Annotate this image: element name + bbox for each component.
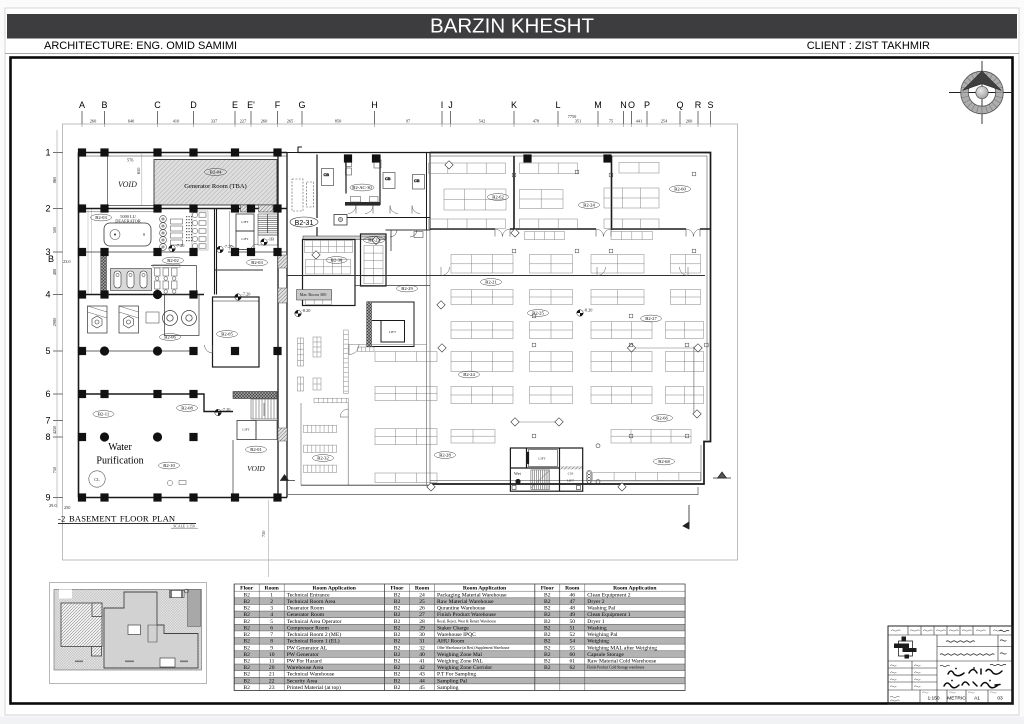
svg-text:Technical Room 1 (EL): Technical Room 1 (EL): [287, 638, 340, 645]
svg-text:Staker Charge: Staker Charge: [437, 625, 469, 631]
svg-text:29.0: 29.0: [49, 503, 57, 508]
svg-text:Raw Material Warehouse: Raw Material Warehouse: [437, 599, 494, 605]
svg-text:N: N: [620, 100, 627, 110]
svg-text:61: 61: [570, 659, 576, 665]
svg-text:B2-68: B2-68: [658, 459, 670, 464]
svg-text:6: 6: [45, 389, 50, 399]
svg-text:640: 640: [128, 119, 134, 124]
svg-text:22: 22: [269, 678, 275, 684]
svg-text:LIFT: LIFT: [241, 220, 249, 224]
svg-text:Technical Room Area: Technical Room Area: [287, 599, 336, 605]
svg-text:B2-66: B2-66: [656, 415, 668, 420]
svg-text:B2-AC-30: B2-AC-30: [352, 185, 372, 190]
svg-text:Room Application: Room Application: [613, 585, 657, 591]
svg-text:Technical Warehouse: Technical Warehouse: [287, 672, 335, 678]
svg-text:B2-10: B2-10: [163, 463, 175, 468]
svg-text:Weighing Zone PAL: Weighing Zone PAL: [437, 659, 484, 665]
svg-text:B2-05: B2-05: [221, 331, 233, 336]
svg-text:750: 750: [52, 467, 57, 473]
svg-text:576: 576: [127, 158, 134, 163]
svg-text:PW Generator: PW Generator: [287, 652, 319, 658]
svg-text:850: 850: [335, 119, 341, 124]
svg-text:B2: B2: [243, 685, 250, 691]
svg-text:Room Application: Room Application: [313, 585, 357, 591]
svg-text:250: 250: [64, 505, 70, 510]
svg-text:2: 2: [270, 599, 273, 605]
svg-text:CL: CL: [94, 477, 100, 482]
svg-text:B2: B2: [544, 625, 551, 631]
svg-text:40: 40: [419, 652, 425, 658]
svg-text:9: 9: [270, 645, 273, 651]
svg-text:AHU Room: AHU Room: [437, 639, 465, 645]
svg-text:650: 650: [136, 168, 141, 174]
svg-text:B2: B2: [243, 632, 250, 638]
svg-text:Dryer 1: Dryer 1: [587, 619, 604, 625]
svg-text:28: 28: [419, 619, 425, 625]
svg-text:B2: B2: [243, 645, 250, 651]
svg-text:Compressor Room: Compressor Room: [287, 625, 330, 631]
svg-text:B2: B2: [243, 606, 250, 612]
svg-text:43: 43: [419, 672, 425, 678]
svg-text:B2: B2: [394, 632, 401, 638]
svg-text:Sampling Pal: Sampling Pal: [437, 678, 467, 684]
svg-text:Deaerator Room: Deaerator Room: [287, 606, 325, 612]
svg-text:B2: B2: [394, 672, 401, 678]
svg-text:B2-24: B2-24: [583, 202, 595, 207]
svg-text:Weighing Pal: Weighing Pal: [587, 632, 618, 638]
svg-text:23: 23: [269, 685, 275, 691]
svg-text:32: 32: [419, 645, 425, 651]
svg-text:Technical Entrance: Technical Entrance: [287, 592, 330, 598]
svg-text:P.T For Sampling: P.T For Sampling: [437, 672, 476, 678]
svg-text:21: 21: [269, 672, 275, 678]
svg-text:Water: Water: [108, 442, 132, 453]
svg-text:CB: CB: [414, 178, 420, 183]
svg-text:B: B: [48, 254, 54, 264]
svg-text:B: B: [101, 100, 107, 110]
svg-text:1: 1: [270, 592, 273, 598]
svg-text:-7.20: -7.20: [242, 292, 251, 297]
svg-text:LIFT: LIFT: [389, 330, 397, 334]
svg-text:Qurantine Warehouse: Qurantine Warehouse: [437, 606, 486, 612]
svg-text:55: 55: [570, 645, 576, 651]
svg-text:Wet: Wet: [514, 471, 522, 476]
svg-text:B2: B2: [544, 612, 551, 618]
svg-text:Printed Material (at top): Printed Material (at top): [287, 684, 341, 691]
svg-text:K: K: [511, 100, 517, 110]
svg-text:METRIC: METRIC: [947, 696, 966, 702]
svg-text:ARCHITECTURE: ENG. OMID SAMIM: ARCHITECTURE: ENG. OMID SAMIMI: [44, 40, 237, 52]
svg-text:-8.20: -8.20: [584, 308, 593, 313]
svg-text:5: 5: [45, 346, 50, 356]
svg-text:260: 260: [686, 119, 692, 124]
svg-text:B2-23: B2-23: [368, 237, 380, 242]
svg-text:4: 4: [45, 290, 50, 300]
svg-text:D: D: [190, 100, 197, 110]
svg-text:LIFT: LIFT: [241, 237, 249, 241]
svg-text:CB: CB: [385, 176, 391, 181]
svg-text:I: I: [441, 100, 444, 110]
svg-text:B2: B2: [394, 606, 401, 612]
svg-text:B2: B2: [243, 665, 250, 671]
svg-text:Room: Room: [565, 585, 580, 591]
svg-text:42: 42: [419, 665, 425, 671]
svg-text:BARZIN KHESHT: BARZIN KHESHT: [430, 15, 594, 38]
svg-text:Weighing Zone Mal: Weighing Zone Mal: [437, 652, 482, 658]
svg-text:E: E: [232, 100, 238, 110]
svg-text:CB: CB: [324, 172, 330, 177]
svg-text:30: 30: [419, 632, 425, 638]
svg-text:B2-08: B2-08: [181, 405, 193, 410]
svg-text:46: 46: [570, 592, 576, 598]
svg-text:Weighing: Weighing: [587, 639, 609, 645]
svg-text:E': E': [247, 100, 255, 110]
svg-text:337: 337: [211, 119, 218, 124]
svg-text:B2: B2: [394, 619, 401, 625]
svg-text:Floor: Floor: [541, 585, 555, 591]
svg-text:G: G: [298, 100, 305, 110]
svg-text:B2-28: B2-28: [439, 452, 451, 457]
svg-text:B2-25: B2-25: [532, 310, 544, 315]
svg-text:0: 0: [143, 232, 145, 237]
svg-text:B2: B2: [544, 606, 551, 612]
svg-text:Sampling: Sampling: [437, 685, 459, 691]
svg-text:B2-03: B2-03: [251, 260, 263, 265]
svg-text:6: 6: [270, 625, 273, 631]
svg-text:B2-06: B2-06: [164, 334, 176, 339]
svg-text:B2: B2: [394, 665, 401, 671]
svg-text:-1B: -1B: [268, 237, 275, 242]
svg-text:B2: B2: [544, 659, 551, 665]
svg-text:542: 542: [479, 119, 485, 124]
svg-text:Security Area: Security Area: [287, 678, 318, 684]
svg-text:B2: B2: [394, 625, 401, 631]
svg-text:8: 8: [270, 639, 273, 645]
svg-text:VOID: VOID: [247, 464, 265, 473]
svg-text:C: C: [154, 100, 161, 110]
svg-text:B2-04: B2-04: [210, 170, 222, 175]
svg-text:-2 BASEMENT FLOOR PLAN: -2 BASEMENT FLOOR PLAN: [58, 514, 176, 524]
svg-text:Weighing Zone Corridor: Weighing Zone Corridor: [437, 665, 492, 671]
svg-text:4: 4: [270, 612, 273, 618]
svg-text:H: H: [371, 100, 378, 110]
svg-text:1: 1: [45, 148, 50, 158]
svg-text:24: 24: [419, 592, 425, 598]
svg-text:L: L: [555, 100, 560, 110]
svg-text:03: 03: [997, 696, 1003, 702]
svg-text:B2-01: B2-01: [250, 447, 262, 452]
svg-text:41: 41: [419, 659, 425, 665]
svg-text:B2: B2: [394, 645, 401, 651]
svg-text:B2-11: B2-11: [98, 411, 110, 416]
svg-text:B2: B2: [394, 678, 401, 684]
svg-text:B2-03: B2-03: [95, 215, 107, 220]
svg-text:20: 20: [269, 665, 275, 671]
svg-text:CLIENT : ZIST TAKHMIR: CLIENT : ZIST TAKHMIR: [807, 40, 930, 52]
svg-text:B2-32: B2-32: [317, 455, 329, 460]
svg-text:Generator Room: Generator Room: [287, 612, 325, 618]
svg-text:PW Generator AL: PW Generator AL: [287, 645, 328, 651]
svg-text:2: 2: [45, 204, 50, 214]
svg-text:B2: B2: [394, 639, 401, 645]
svg-text:Clean Equipment 1: Clean Equipment 1: [587, 612, 630, 618]
svg-text:Washing: Washing: [587, 625, 607, 631]
svg-text:B2-27: B2-27: [645, 316, 657, 321]
svg-text:9: 9: [45, 493, 50, 503]
svg-text:Q: Q: [676, 100, 683, 110]
svg-text:Washing Pal: Washing Pal: [587, 606, 615, 612]
svg-text:A1: A1: [974, 696, 980, 702]
svg-text:B2: B2: [544, 592, 551, 598]
svg-text:Room: Room: [415, 585, 430, 591]
svg-text:60: 60: [570, 652, 576, 658]
svg-text:-8.20: -8.20: [302, 308, 311, 313]
svg-text:Dryer 2: Dryer 2: [587, 599, 604, 605]
svg-text:B2: B2: [243, 652, 250, 658]
svg-text:7: 7: [45, 416, 50, 426]
svg-text:B2: B2: [243, 592, 250, 598]
svg-text:Capsule Storage: Capsule Storage: [587, 652, 624, 658]
svg-text:-7.20: -7.20: [222, 407, 231, 412]
svg-text:488: 488: [52, 269, 57, 275]
svg-text:B2-24: B2-24: [463, 372, 475, 377]
svg-text:B2-30: B2-30: [331, 257, 343, 262]
svg-text:C03: C03: [568, 472, 574, 476]
svg-text:62: 62: [570, 665, 576, 671]
svg-text:B2: B2: [243, 672, 250, 678]
svg-text:B2: B2: [243, 659, 250, 665]
svg-text:260: 260: [261, 119, 267, 124]
svg-text:B2: B2: [544, 645, 551, 651]
svg-text:3: 3: [270, 606, 273, 612]
svg-text:351: 351: [575, 119, 581, 124]
svg-text:Mac Room 300: Mac Room 300: [300, 292, 327, 297]
svg-text:B2: B2: [243, 599, 250, 605]
svg-text:B2: B2: [394, 599, 401, 605]
svg-text:O: O: [628, 100, 635, 110]
svg-text:Weighing MAL after Weighing: Weighing MAL after Weighing: [587, 644, 657, 651]
svg-text:A: A: [79, 100, 85, 110]
svg-text:260: 260: [90, 119, 96, 124]
svg-text:Room Application: Room Application: [463, 585, 507, 591]
svg-text:7: 7: [270, 632, 273, 638]
svg-text:Technical Room 2 (ME): Technical Room 2 (ME): [287, 631, 342, 638]
svg-text:SCALE 1:150: SCALE 1:150: [173, 525, 195, 529]
svg-text:31: 31: [419, 639, 425, 645]
svg-text:B2-60: B2-60: [674, 186, 686, 191]
svg-text:B2: B2: [394, 652, 401, 658]
svg-text:51: 51: [570, 625, 576, 631]
svg-text:Room: Room: [265, 585, 280, 591]
svg-text:23.0: 23.0: [63, 259, 71, 264]
svg-text:Floor: Floor: [390, 585, 404, 591]
svg-text:Finish Product Warehouse: Finish Product Warehouse: [437, 612, 496, 618]
svg-text:4250: 4250: [52, 426, 57, 435]
svg-text:B2: B2: [544, 599, 551, 605]
svg-text:Packaging Material Warehouse: Packaging Material Warehouse: [437, 592, 507, 598]
svg-text:B2: B2: [243, 678, 250, 684]
svg-text:52: 52: [570, 632, 576, 638]
svg-text:B2: B2: [544, 665, 551, 671]
svg-text:B2: B2: [544, 619, 551, 625]
svg-text:B2: B2: [544, 652, 551, 658]
svg-text:B2: B2: [243, 639, 250, 645]
svg-text:B2-29: B2-29: [401, 286, 413, 291]
svg-text:B2-21: B2-21: [485, 279, 497, 284]
svg-text:Generator Room (TBA): Generator Room (TBA): [184, 183, 246, 190]
svg-text:2980: 2980: [52, 318, 57, 327]
svg-text:DEAERATOR: DEAERATOR: [115, 219, 141, 224]
svg-text:54: 54: [570, 639, 576, 645]
svg-text:P: P: [644, 100, 650, 110]
svg-text:B2: B2: [394, 592, 401, 598]
svg-text:29: 29: [419, 625, 425, 631]
svg-text:B2-02: B2-02: [167, 258, 179, 263]
svg-text:1:150: 1:150: [927, 696, 939, 702]
svg-text:F: F: [275, 100, 281, 110]
svg-text:227: 227: [240, 119, 247, 124]
svg-text:B2-62: B2-62: [492, 194, 504, 199]
svg-text:26: 26: [419, 606, 425, 612]
svg-text:Raw Material Cold Warehouse: Raw Material Cold Warehouse: [587, 659, 656, 665]
svg-text:49: 49: [570, 612, 576, 618]
svg-text:LIFT: LIFT: [538, 457, 546, 461]
svg-text:VOID: VOID: [118, 180, 137, 189]
svg-text:Warehouse Area: Warehouse Area: [287, 665, 324, 671]
svg-text:860: 860: [52, 177, 57, 183]
svg-text:75: 75: [609, 119, 613, 124]
svg-text:B2: B2: [394, 685, 401, 691]
svg-text:Clean Equipment 2: Clean Equipment 2: [587, 592, 630, 598]
svg-text:44: 44: [419, 678, 425, 684]
svg-text:LIFT: LIFT: [567, 479, 575, 483]
svg-text:Technical Area Operator: Technical Area Operator: [287, 619, 342, 625]
svg-text:500: 500: [52, 227, 57, 233]
svg-text:B2: B2: [243, 619, 250, 625]
svg-text:R: R: [695, 100, 702, 110]
svg-text:B2-31: B2-31: [295, 220, 314, 227]
svg-text:25: 25: [419, 599, 425, 605]
svg-text:750: 750: [261, 531, 266, 537]
svg-text:B2: B2: [544, 632, 551, 638]
svg-text:B2: B2: [243, 625, 250, 631]
svg-text:5: 5: [270, 619, 273, 625]
svg-text:J: J: [448, 100, 453, 110]
svg-text:Finish Product Cold Storage wa: Finish Product Cold Storage warehouse: [587, 666, 644, 670]
svg-text:-7.20: -7.20: [176, 243, 185, 248]
svg-text:8: 8: [45, 432, 50, 442]
svg-text:50: 50: [570, 619, 576, 625]
svg-text:LIFT: LIFT: [242, 428, 250, 432]
svg-text:27: 27: [419, 612, 425, 618]
svg-text:11: 11: [269, 659, 275, 665]
svg-text:45: 45: [419, 685, 425, 691]
svg-text:B2: B2: [243, 612, 250, 618]
svg-text:10: 10: [269, 652, 275, 658]
svg-text:254: 254: [661, 119, 668, 124]
svg-text:Offer Warehouse (at Rest) Supp: Offer Warehouse (at Rest) Supplement War…: [437, 646, 510, 650]
svg-text:48: 48: [570, 606, 576, 612]
svg-text:265: 265: [287, 119, 293, 124]
svg-text:478: 478: [533, 119, 539, 124]
svg-text:B2: B2: [394, 612, 401, 618]
svg-text:B2: B2: [394, 659, 401, 665]
svg-text:S: S: [707, 100, 713, 110]
svg-text:441: 441: [636, 119, 642, 124]
svg-text:47: 47: [570, 599, 576, 605]
svg-text:410: 410: [173, 119, 179, 124]
svg-text:B2: B2: [544, 639, 551, 645]
svg-text:M: M: [594, 100, 602, 110]
svg-text:Floor: Floor: [240, 585, 254, 591]
svg-text:Purification: Purification: [96, 456, 143, 467]
svg-text:PW For Hazard: PW For Hazard: [287, 659, 322, 665]
svg-text:Warehouse IPQC: Warehouse IPQC: [437, 632, 476, 638]
